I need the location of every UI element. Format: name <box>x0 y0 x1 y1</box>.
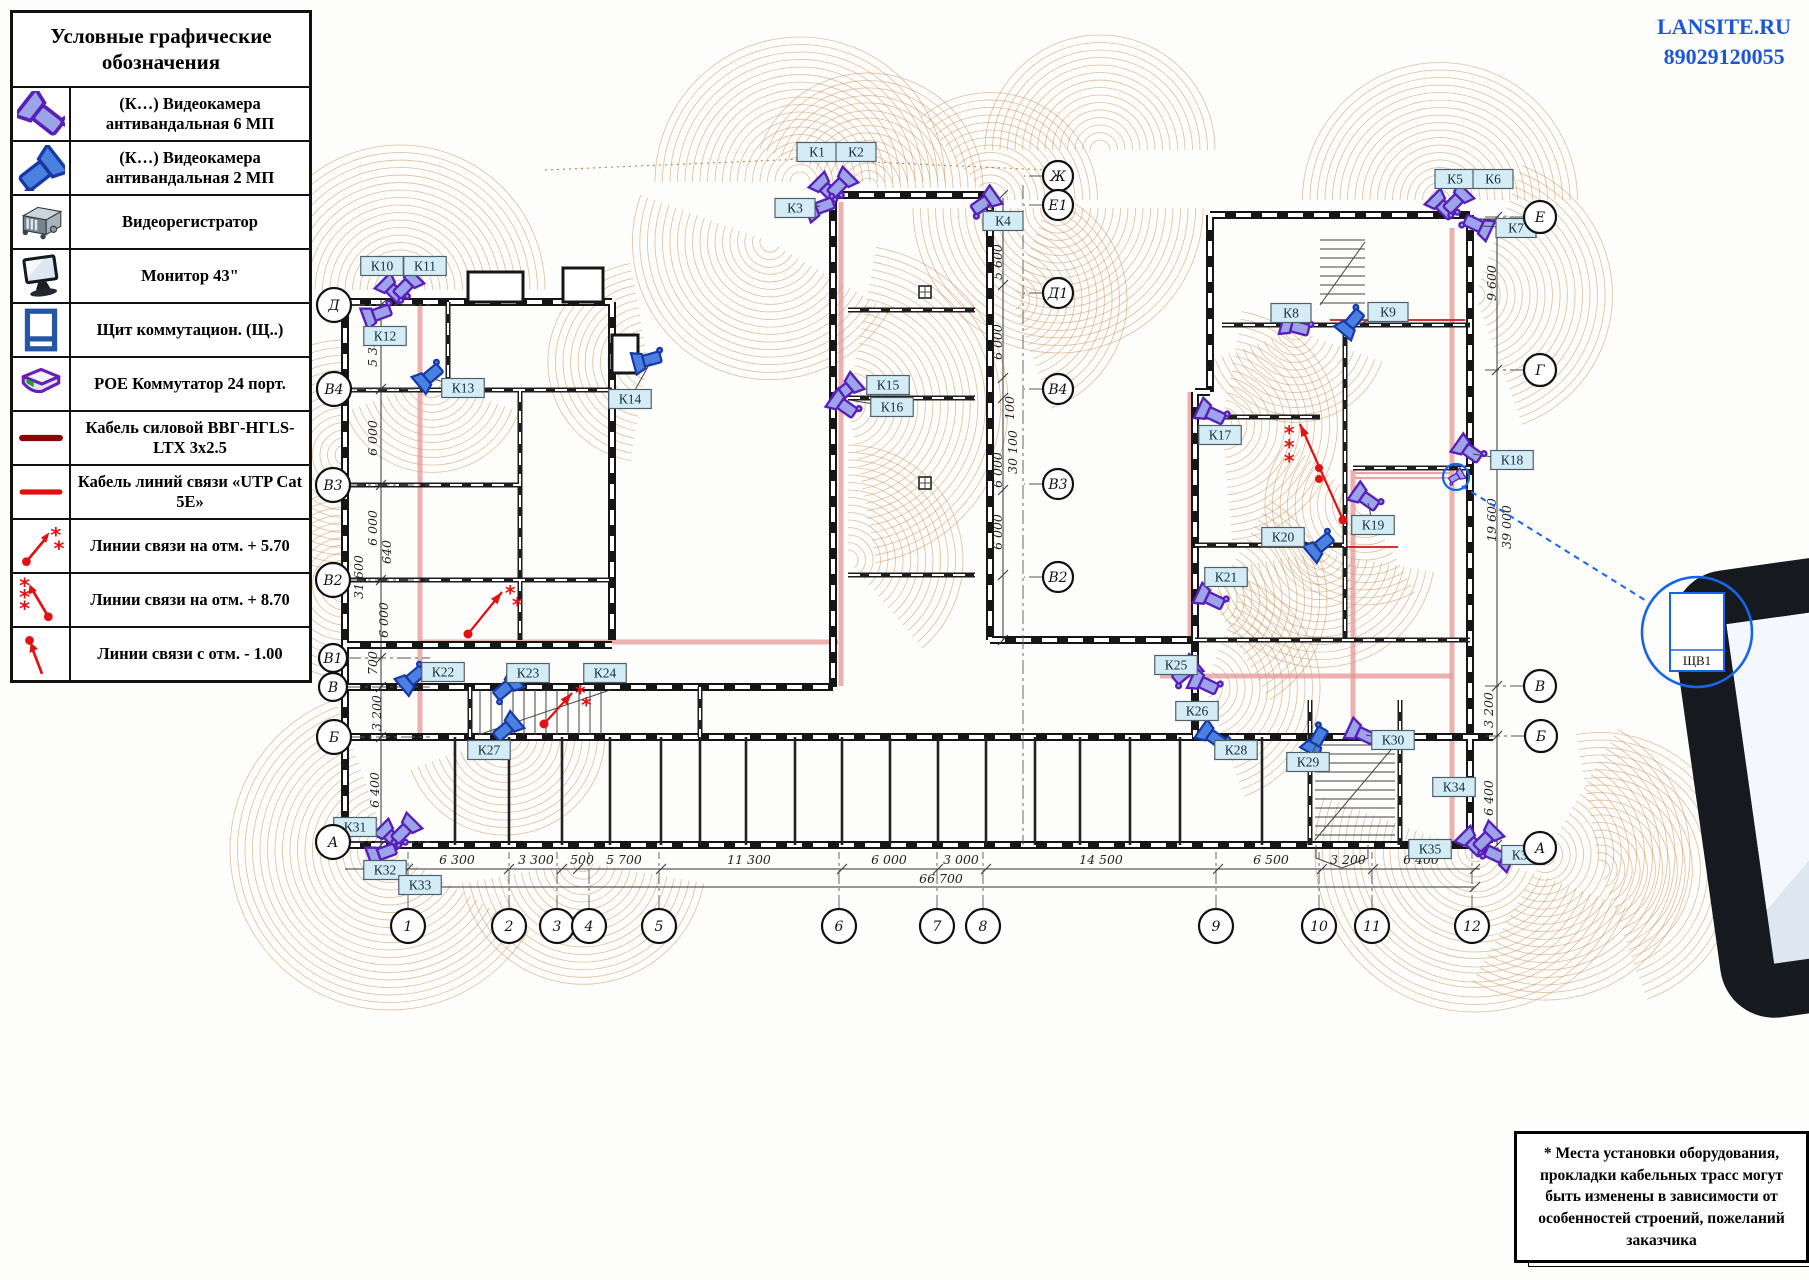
svg-text:К6: К6 <box>1485 172 1501 187</box>
dimension-text: 6 000 <box>365 420 380 456</box>
dimension-text: 6 400 <box>367 772 382 808</box>
svg-text:В4: В4 <box>323 382 343 398</box>
dimension-text: 30 100 <box>1005 430 1020 474</box>
svg-text:4: 4 <box>584 919 594 935</box>
svg-text:К33: К33 <box>409 878 432 893</box>
axis-bubble-3: 3 <box>540 909 574 943</box>
axis-bubble-А: А <box>1524 832 1556 864</box>
svg-text:К9: К9 <box>1380 305 1396 320</box>
dimension-text: 9 600 <box>1484 265 1499 301</box>
camera-label-К21: К21 <box>1205 568 1248 587</box>
axis-bubble-Е1: Е1 <box>1043 190 1073 220</box>
svg-text:11: 11 <box>1363 919 1381 935</box>
dimension-text: 6 000 <box>376 602 391 638</box>
axis-bubble-В2: В2 <box>1043 562 1073 592</box>
axis-bubble-1: 1 <box>391 909 425 943</box>
camera-label-К23: К23 <box>507 664 550 683</box>
legend-label: Монитор 43" <box>71 250 309 302</box>
dimension-text: 31 600 <box>351 555 366 599</box>
camera-label-К26: К26 <box>1176 702 1219 721</box>
axis-bubble-Б: Б <box>1525 720 1557 752</box>
svg-text:К12: К12 <box>374 329 397 344</box>
svg-text:К30: К30 <box>1382 733 1405 748</box>
legend-row-link570: Линии связи на отм. + 5.70 <box>13 518 309 572</box>
svg-text:К10: К10 <box>371 259 394 274</box>
legend-label: (К…) Видеокамера антивандальная 2 МП <box>71 142 309 194</box>
axis-bubble-11: 11 <box>1355 909 1389 943</box>
legend-label: Линии связи на отм. + 8.70 <box>71 574 309 626</box>
svg-text:*: * <box>512 593 523 617</box>
legend-label: Видеорегистратор <box>71 196 309 248</box>
svg-text:К25: К25 <box>1165 658 1188 673</box>
coverage-fan <box>760 73 983 188</box>
dimension-text: 14 500 <box>1079 852 1123 867</box>
legend-title: Условные графические обозначения <box>13 13 309 86</box>
svg-text:К4: К4 <box>995 214 1011 229</box>
svg-text:К5: К5 <box>1447 172 1463 187</box>
legend-row-monitor: Монитор 43" <box>13 248 309 302</box>
svg-text:К34: К34 <box>1443 780 1466 795</box>
legend-label: Кабель силовой ВВГ-НГLS-LTX 3х2.5 <box>71 412 309 464</box>
legend-row-panel: Щит коммутацион. (Щ..) <box>13 302 309 356</box>
legend-label: Щит коммутацион. (Щ..) <box>71 304 309 356</box>
svg-text:В3: В3 <box>322 478 342 494</box>
camera-label-К27: К27 <box>468 741 511 760</box>
legend-row-link100: Линии связи с отм. - 1.00 <box>13 626 309 680</box>
svg-text:К1: К1 <box>809 145 825 160</box>
camera-label-К25: К25 <box>1155 656 1198 675</box>
svg-text:К3: К3 <box>787 201 803 216</box>
dvr-icon <box>13 196 71 248</box>
cam6-icon <box>13 88 71 140</box>
dimension-text: 6 000 <box>990 324 1005 360</box>
camera-label-К30: К30 <box>1366 731 1414 750</box>
axis-bubble-6: 6 <box>822 909 856 943</box>
svg-text:К21: К21 <box>1215 570 1238 585</box>
camera-label-К17: К17 <box>1199 426 1242 445</box>
camera-label-К22: К22 <box>422 663 465 682</box>
axis-bubble-А: А <box>316 825 350 859</box>
camera-label-К9: К9 <box>1357 303 1408 326</box>
legend-label: Линии связи на отм. + 5.70 <box>71 520 309 572</box>
svg-text:2: 2 <box>504 919 514 935</box>
coverage-fan <box>985 35 1215 150</box>
svg-text:К17: К17 <box>1209 428 1232 443</box>
axis-bubble-В1: В1 <box>319 644 347 672</box>
camera-label-К5: К5 <box>1435 170 1475 189</box>
svg-text:В1: В1 <box>322 651 342 667</box>
svg-text:К20: К20 <box>1272 530 1295 545</box>
legend-row-cable-utp: Кабель линий связи «UTP Cat 5E» <box>13 464 309 518</box>
dimension-text: 3 000 <box>943 852 979 867</box>
link100-icon <box>13 628 71 680</box>
svg-text:К22: К22 <box>432 665 455 680</box>
svg-text:6: 6 <box>835 919 844 935</box>
riser-arrow: ** <box>464 581 524 639</box>
dimension-text: 6 500 <box>1253 852 1289 867</box>
axis-bubble-Г: Г <box>1524 354 1556 386</box>
brand: LANSITE.RU 89029120055 <box>1657 12 1791 71</box>
camera-label-К2: К2 <box>836 143 876 162</box>
note-box: * Места установки оборудования, прокладк… <box>1514 1131 1809 1263</box>
legend-label: Линии связи с отм. - 1.00 <box>71 628 309 680</box>
camera-label-К1: К1 <box>797 143 837 162</box>
camera-label-К35: К35 <box>1409 840 1452 859</box>
svg-text:К13: К13 <box>452 381 475 396</box>
svg-text:Д: Д <box>327 298 340 314</box>
riser-arrow: *** <box>1284 421 1348 525</box>
axis-bubble-7: 7 <box>920 909 954 943</box>
axis-bubble-12: 12 <box>1455 909 1489 943</box>
svg-text:К28: К28 <box>1225 743 1248 758</box>
svg-text:К32: К32 <box>374 863 397 878</box>
svg-text:1: 1 <box>404 919 413 935</box>
svg-text:3: 3 <box>553 919 562 935</box>
axis-bubble-4: 4 <box>572 909 606 943</box>
legend-label: POE Коммутатор 24 порт. <box>71 358 309 410</box>
dimension-text: 5 700 <box>606 852 642 867</box>
svg-text:*: * <box>581 693 592 717</box>
camera-label-К28: К28 <box>1215 741 1258 760</box>
dimension-text: 6 400 <box>1481 780 1496 816</box>
legend-panel: Условные графические обозначения (К…) Ви… <box>10 10 312 683</box>
panel-icon <box>13 304 71 356</box>
svg-text:А: А <box>327 835 339 851</box>
svg-text:9: 9 <box>1212 919 1221 935</box>
svg-text:В2: В2 <box>1047 570 1067 586</box>
camera-label-К11: К11 <box>404 257 447 276</box>
camera-label-К6: К6 <box>1473 170 1513 189</box>
svg-text:К16: К16 <box>881 400 904 415</box>
dimension-text: 500 <box>570 852 594 867</box>
dimension-text: 5 600 <box>990 244 1005 280</box>
dimension-text: 640 <box>379 540 394 564</box>
dimension-text: 6 000 <box>990 514 1005 550</box>
svg-text:К19: К19 <box>1362 518 1385 533</box>
legend-row-cam2: (К…) Видеокамера антивандальная 2 МП <box>13 140 309 194</box>
svg-text:К2: К2 <box>848 145 864 160</box>
legend-row-poe: POE Коммутатор 24 порт. <box>13 356 309 410</box>
svg-text:К14: К14 <box>619 392 642 407</box>
svg-text:В: В <box>327 680 338 696</box>
axis-bubble-Е: Е <box>1524 201 1556 233</box>
svg-text:В: В <box>1534 679 1545 695</box>
axis-bubble-В: В <box>319 673 347 701</box>
legend-row-link870: Линии связи на отм. + 8.70 <box>13 572 309 626</box>
svg-text:К24: К24 <box>594 666 617 681</box>
axis-bubble-В3: В3 <box>1043 469 1073 499</box>
svg-text:5: 5 <box>655 919 664 935</box>
svg-text:Е1: Е1 <box>1047 198 1067 214</box>
camera-label-К10: К10 <box>361 257 404 276</box>
axis-bubble-В3: В3 <box>316 468 350 502</box>
axis-bubble-9: 9 <box>1199 909 1233 943</box>
dimension-text: 11 300 <box>727 852 771 867</box>
axis-bubble-5: 5 <box>642 909 676 943</box>
link870-icon <box>13 574 71 626</box>
blueprint-page: ** *** 6 3003 3005005 70011 3006 0003 00… <box>0 0 1809 1280</box>
svg-text:К8: К8 <box>1283 306 1299 321</box>
cam2-icon <box>13 142 71 194</box>
svg-text:К15: К15 <box>877 378 900 393</box>
dimension-text: 3 300 <box>518 852 554 867</box>
axis-bubble-2: 2 <box>492 909 526 943</box>
legend-rows: (К…) Видеокамера антивандальная 6 МП(К…)… <box>13 86 309 680</box>
svg-text:*: * <box>1284 449 1295 473</box>
dimension-total: 66 700 <box>919 871 963 886</box>
axis-bubble-Б: Б <box>317 720 351 754</box>
cable-power-icon <box>13 412 71 464</box>
cabinet-label: ЩВ1 <box>1683 653 1711 668</box>
camera-label-К34: К34 <box>1433 778 1476 797</box>
camera-label-К13: К13 <box>434 379 484 398</box>
dimension-text: 3 200 <box>1330 852 1366 867</box>
svg-text:Д1: Д1 <box>1047 286 1068 302</box>
svg-text:В3: В3 <box>1047 477 1067 493</box>
dimension-text: 6 000 <box>990 452 1005 488</box>
axis-bubble-Д: Д <box>317 288 351 322</box>
svg-text:К18: К18 <box>1501 453 1524 468</box>
dimension-text: 6 000 <box>871 852 907 867</box>
brand-site: LANSITE.RU <box>1657 12 1791 42</box>
camera-label-К3: К3 <box>775 199 820 218</box>
brand-phone: 89029120055 <box>1657 42 1791 72</box>
svg-text:К35: К35 <box>1419 842 1442 857</box>
coverage-fan <box>1208 333 1382 422</box>
dimension-text: 39 000 <box>1499 505 1514 549</box>
svg-text:А: А <box>1534 841 1546 857</box>
axis-bubble-Ж: Ж <box>1043 161 1073 191</box>
dimension-text: 6 300 <box>439 852 475 867</box>
svg-text:К11: К11 <box>414 259 436 274</box>
svg-text:Б: Б <box>1535 729 1546 745</box>
link570-icon <box>13 520 71 572</box>
svg-text:Б: Б <box>328 730 339 746</box>
svg-text:12: 12 <box>1463 919 1481 935</box>
svg-text:К27: К27 <box>478 743 501 758</box>
legend-row-dvr: Видеорегистратор <box>13 194 309 248</box>
axis-bubble-Д1: Д1 <box>1043 278 1073 308</box>
axis-bubble-В2: В2 <box>316 563 350 597</box>
dimension-text: 3 200 <box>1481 692 1496 728</box>
camera-label-К15: К15 <box>867 376 910 395</box>
axis-bubble-В: В <box>1524 670 1556 702</box>
svg-text:К7: К7 <box>1508 221 1524 236</box>
camera-label-К12: К12 <box>364 327 407 346</box>
legend-label: (К…) Видеокамера антивандальная 6 МП <box>71 88 309 140</box>
camera-label-К33: К33 <box>399 876 442 895</box>
svg-text:К29: К29 <box>1297 755 1320 770</box>
svg-text:К26: К26 <box>1186 704 1209 719</box>
axis-bubble-10: 10 <box>1302 909 1336 943</box>
axis-bubble-В4: В4 <box>317 372 351 406</box>
cable-utp-icon <box>13 466 71 518</box>
poe-icon <box>13 358 71 410</box>
legend-label: Кабель линий связи «UTP Cat 5E» <box>71 466 309 518</box>
note-text: * Места установки оборудования, прокладк… <box>1538 1145 1785 1249</box>
svg-text:В2: В2 <box>322 573 342 589</box>
camera-label-К8: К8 <box>1271 304 1311 323</box>
svg-text:8: 8 <box>979 919 988 935</box>
svg-text:Е: Е <box>1534 210 1545 226</box>
dimension-text: 100 <box>1002 396 1017 420</box>
svg-text:7: 7 <box>933 919 942 935</box>
svg-text:Ж: Ж <box>1049 169 1067 185</box>
dimension-text: 700 <box>365 651 380 675</box>
coverage-fan <box>632 195 889 380</box>
svg-text:В4: В4 <box>1047 382 1067 398</box>
legend-row-cam6: (К…) Видеокамера антивандальная 6 МП <box>13 86 309 140</box>
svg-text:10: 10 <box>1310 919 1328 935</box>
dimension-text: 6 000 <box>365 510 380 546</box>
legend-row-cable-power: Кабель силовой ВВГ-НГLS-LTX 3х2.5 <box>13 410 309 464</box>
svg-text:К23: К23 <box>517 666 540 681</box>
dimension-text: 3 200 <box>369 695 384 731</box>
svg-text:Г: Г <box>1534 363 1545 379</box>
monitor-icon <box>13 250 71 302</box>
axis-bubble-В4: В4 <box>1043 374 1073 404</box>
camera-label-К24: К24 <box>584 664 627 683</box>
axis-bubble-8: 8 <box>966 909 1000 943</box>
